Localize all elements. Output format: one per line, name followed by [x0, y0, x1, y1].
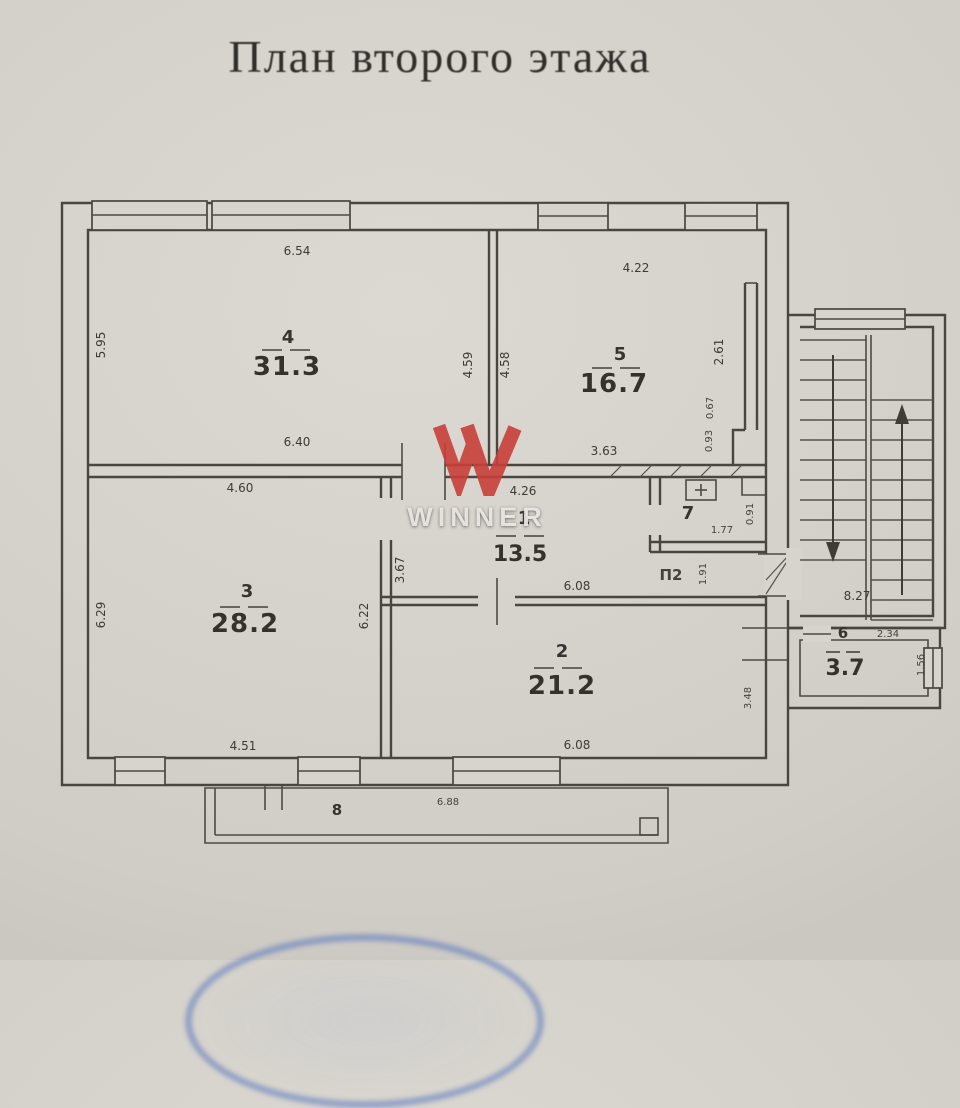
stairs-up-arrowhead — [895, 404, 909, 424]
dim-shaft-mid: 0.67 — [705, 397, 716, 419]
dim-room3-bottom: 4.51 — [230, 739, 257, 753]
room-5-area: 16.7 — [580, 369, 648, 399]
room-2-area: 21.2 — [528, 671, 596, 701]
room-7-area: 1.77 — [711, 525, 733, 536]
dim-room3-right: 6.22 — [357, 603, 371, 630]
dim-room3-left: 6.29 — [94, 602, 108, 629]
room-8-number: 8 — [332, 801, 342, 819]
dim-balcony: 6.88 — [437, 797, 459, 808]
winner-logo-icon — [427, 420, 527, 496]
dim-divider45-right: 4.58 — [498, 352, 512, 379]
dim-room1-bottom: 6.08 — [564, 579, 591, 593]
balcony-walls — [205, 785, 668, 843]
room-2-number: 2 — [556, 641, 569, 662]
watermark: WINNER — [392, 420, 562, 533]
hatch-label: П2 — [660, 566, 683, 584]
room-3-number: 3 — [241, 581, 254, 602]
dim-room7-side: 0.91 — [745, 503, 756, 525]
room-5-number: 5 — [614, 344, 627, 365]
dim-shaft-top: 2.61 — [712, 339, 726, 366]
room-6-area: 3.7 — [826, 656, 865, 681]
room-4-area: 31.3 — [253, 352, 321, 382]
dim-room4-top: 6.54 — [284, 244, 311, 258]
windows-bottom-wall — [115, 757, 560, 785]
dim-shaft-bottom: 0.93 — [704, 430, 715, 452]
room-6-number: 6 — [838, 624, 848, 642]
stairs-down-arrowhead — [826, 542, 840, 562]
dim-stairs-depth: 8.27 — [844, 589, 871, 603]
dim-room5-bottom: 3.63 — [591, 444, 618, 458]
dim-divider45-left: 4.59 — [461, 352, 475, 379]
dim-room6-top: 2.34 — [877, 629, 899, 640]
dim-room2-bottom: 6.08 — [564, 738, 591, 752]
dim-room5-top: 4.22 — [623, 261, 650, 275]
dim-room1-left: 3.67 — [393, 557, 407, 584]
stairwell — [786, 309, 945, 628]
dim-room3-top: 4.60 — [227, 481, 254, 495]
dim-room4-left: 5.95 — [94, 332, 108, 359]
room-7-number: 7 — [682, 503, 695, 524]
room-4-number: 4 — [282, 327, 295, 348]
scanned-floor-plan-page: { "title": "План второго этажа", "waterm… — [0, 0, 960, 960]
room-3-area: 28.2 — [211, 609, 279, 639]
dim-hatch-width: 1.91 — [698, 563, 709, 585]
room-1-area: 13.5 — [493, 542, 547, 567]
dim-room6-right: 1.56 — [916, 654, 927, 676]
dim-room2-right: 3.48 — [743, 687, 754, 709]
stamp-arc — [185, 934, 544, 1108]
dim-room4-bottom: 6.40 — [284, 435, 311, 449]
watermark-brand-text: WINNER — [392, 502, 562, 533]
windows-top-wall — [92, 201, 757, 230]
